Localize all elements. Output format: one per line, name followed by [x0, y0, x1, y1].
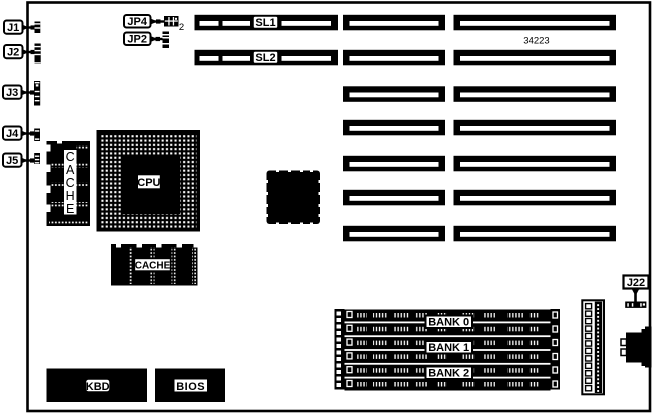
svg-text:JP2: JP2	[127, 34, 147, 46]
svg-text:34223: 34223	[523, 36, 549, 47]
svg-text:C: C	[66, 176, 75, 190]
svg-text:2: 2	[179, 22, 184, 33]
svg-text:J2: J2	[7, 47, 19, 59]
svg-text:BANK 0: BANK 0	[428, 317, 469, 329]
svg-text:J1: J1	[7, 22, 19, 34]
svg-text:SL2: SL2	[255, 52, 275, 64]
svg-text:J5: J5	[6, 155, 18, 167]
svg-text:J22: J22	[627, 277, 645, 289]
svg-text:CACHE: CACHE	[135, 261, 171, 272]
svg-text:J3: J3	[6, 87, 18, 99]
svg-text:BANK 2: BANK 2	[428, 368, 469, 380]
svg-text:J4: J4	[6, 128, 19, 140]
svg-text:SL1: SL1	[255, 17, 275, 29]
svg-text:BIOS: BIOS	[176, 381, 205, 393]
svg-text:C: C	[66, 150, 75, 164]
svg-text:H: H	[66, 189, 75, 203]
svg-text:A: A	[66, 163, 75, 177]
svg-text:CPU: CPU	[137, 177, 160, 189]
svg-text:JP4: JP4	[127, 16, 147, 28]
svg-text:E: E	[66, 202, 74, 216]
svg-text:KBD: KBD	[86, 381, 110, 393]
svg-text:BANK 1: BANK 1	[428, 342, 469, 354]
